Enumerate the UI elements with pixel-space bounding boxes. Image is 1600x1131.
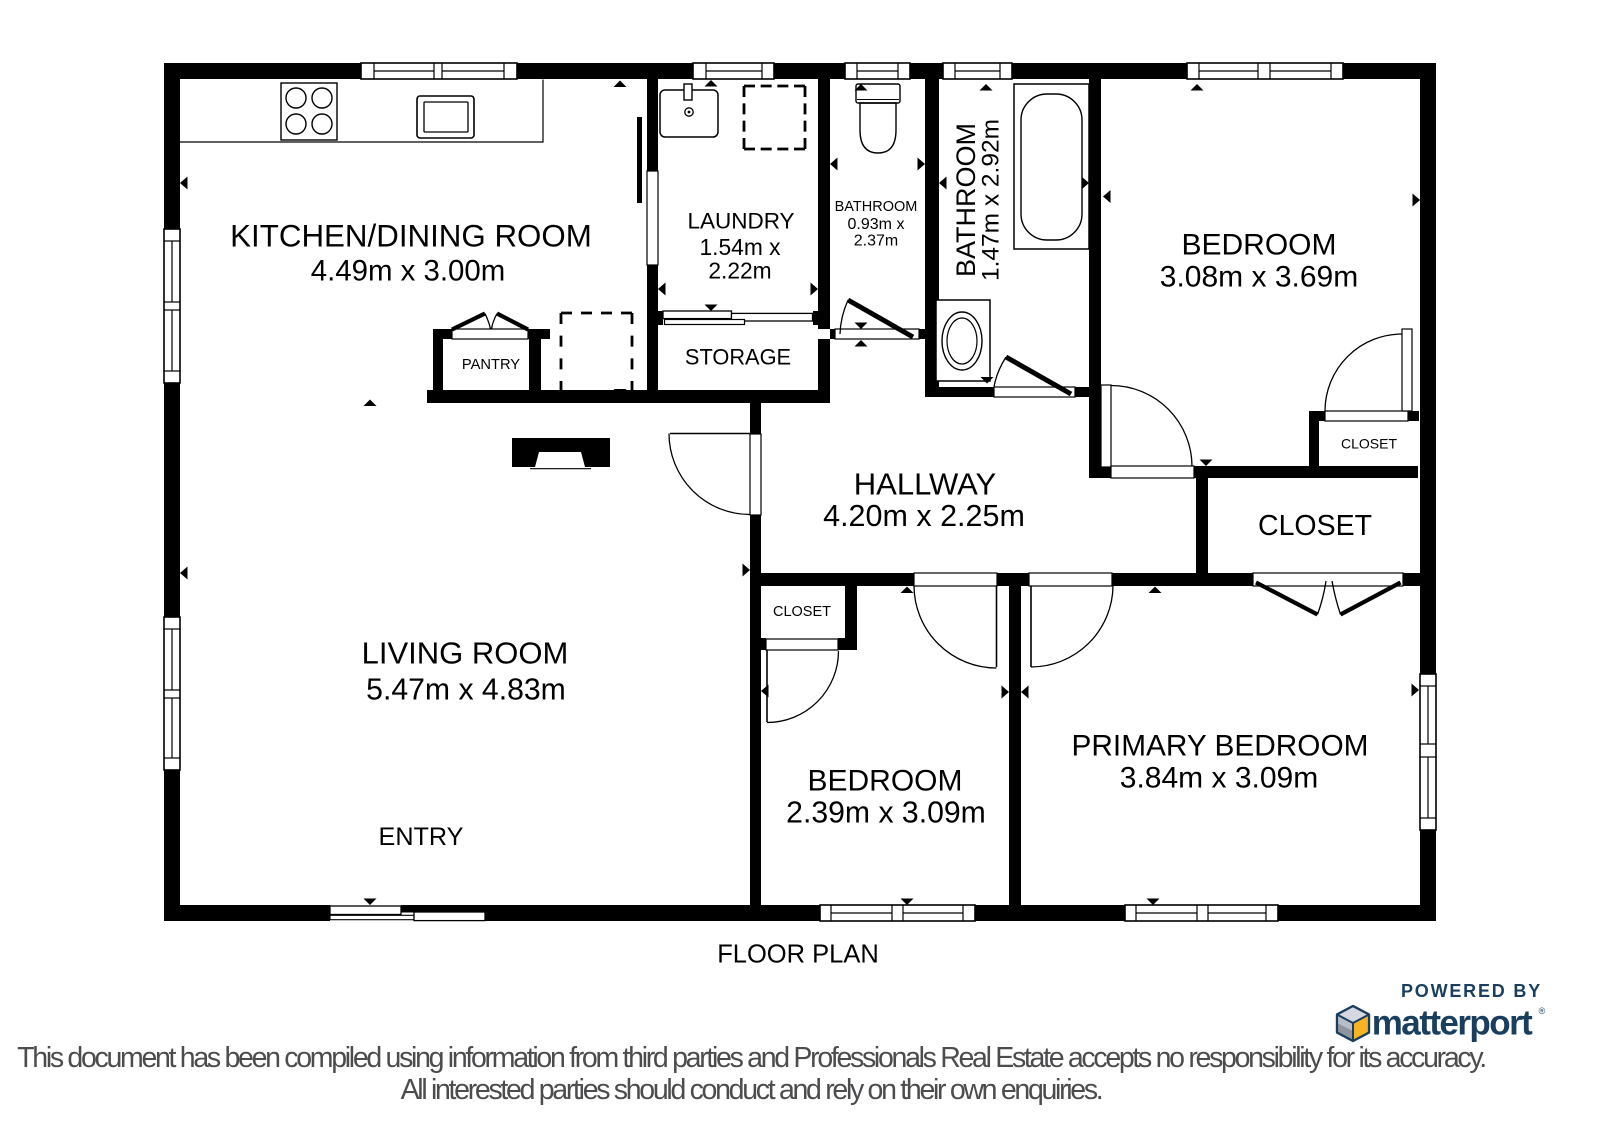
svg-text:KITCHEN/DINING ROOM: KITCHEN/DINING ROOM bbox=[230, 219, 592, 254]
svg-text:PRIMARY BEDROOM: PRIMARY BEDROOM bbox=[1072, 730, 1369, 763]
svg-text:matterport: matterport bbox=[1372, 1004, 1533, 1043]
svg-text:4.49m x 3.00m: 4.49m x 3.00m bbox=[311, 255, 505, 288]
svg-text:®: ® bbox=[1539, 1006, 1546, 1016]
svg-text:2.22m: 2.22m bbox=[708, 258, 771, 284]
svg-text:ENTRY: ENTRY bbox=[379, 823, 464, 851]
svg-text:LAUNDRY: LAUNDRY bbox=[687, 209, 794, 234]
svg-text:LIVING ROOM: LIVING ROOM bbox=[362, 636, 569, 671]
svg-text:This document has been compile: This document has been compiled using in… bbox=[17, 1042, 1485, 1074]
svg-text:3.08m x 3.69m: 3.08m x 3.69m bbox=[1160, 261, 1358, 294]
svg-text:CLOSET: CLOSET bbox=[1258, 510, 1372, 542]
svg-text:1.54m x: 1.54m x bbox=[699, 234, 781, 260]
svg-text:CLOSET: CLOSET bbox=[1341, 436, 1397, 452]
svg-text:5.47m x 4.83m: 5.47m x 4.83m bbox=[366, 674, 566, 707]
svg-text:HALLWAY: HALLWAY bbox=[854, 467, 996, 502]
svg-text:1.47m x 2.92m: 1.47m x 2.92m bbox=[978, 119, 1005, 281]
svg-text:CLOSET: CLOSET bbox=[773, 604, 831, 620]
svg-text:BATHROOM: BATHROOM bbox=[835, 199, 918, 215]
svg-text:2.37m: 2.37m bbox=[854, 233, 898, 250]
svg-text:All interested parties should: All interested parties should conduct an… bbox=[401, 1074, 1102, 1106]
svg-text:0.93m x: 0.93m x bbox=[848, 216, 905, 233]
svg-text:BEDROOM: BEDROOM bbox=[807, 765, 962, 798]
svg-text:PANTRY: PANTRY bbox=[462, 357, 520, 373]
svg-text:BEDROOM: BEDROOM bbox=[1181, 229, 1336, 262]
svg-text:FLOOR PLAN: FLOOR PLAN bbox=[717, 941, 879, 969]
svg-text:3.84m x 3.09m: 3.84m x 3.09m bbox=[1120, 762, 1318, 795]
svg-text:POWERED BY: POWERED BY bbox=[1401, 981, 1542, 1001]
svg-text:2.39m x 3.09m: 2.39m x 3.09m bbox=[786, 797, 986, 830]
svg-text:4.20m x 2.25m: 4.20m x 2.25m bbox=[823, 499, 1025, 533]
svg-text:STORAGE: STORAGE bbox=[685, 345, 791, 370]
svg-text:BATHROOM: BATHROOM bbox=[951, 123, 981, 277]
